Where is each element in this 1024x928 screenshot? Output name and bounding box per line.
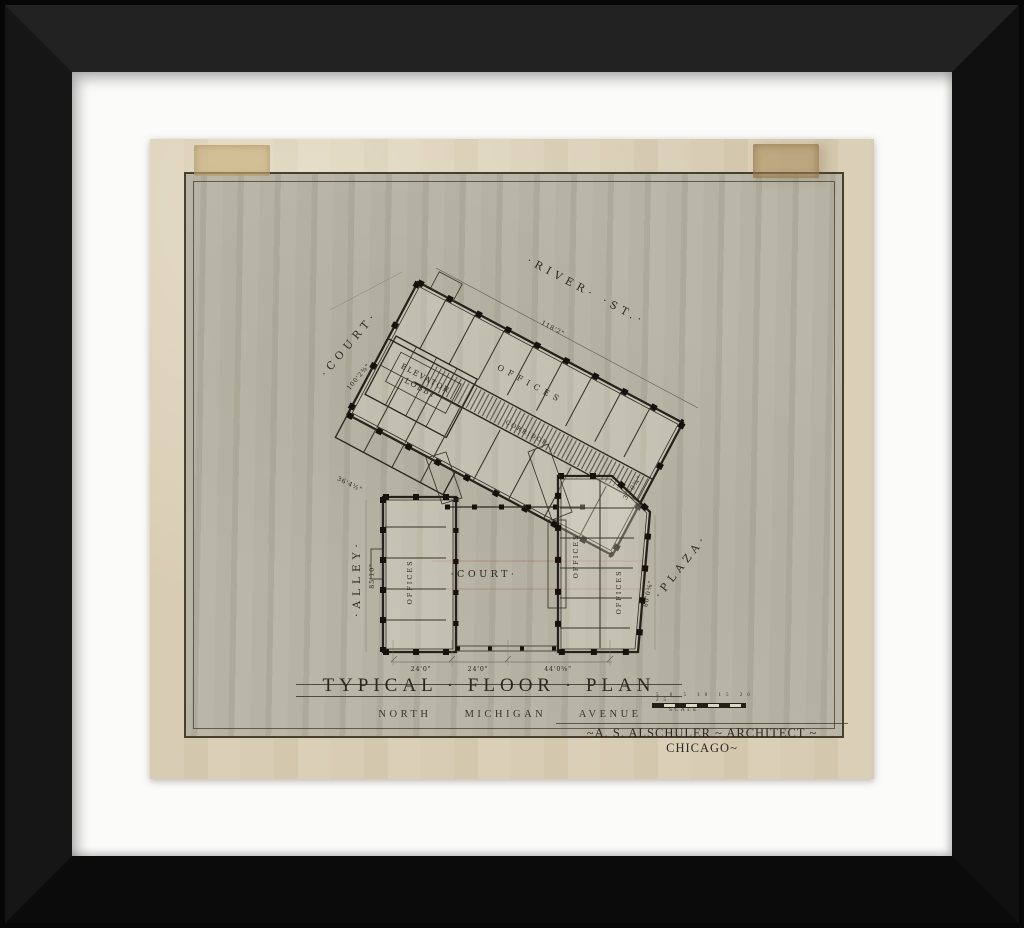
- offices-label-left: OFFICES: [406, 559, 414, 604]
- court-label: ·COURT·: [451, 569, 518, 580]
- architect-signature: ~A. S. ALSCHULER ~ ARCHITECT ~ CHICAGO~: [556, 723, 848, 756]
- floor-plan-drawing: ELEVATOR LOBBY CORRIDOR OFFICES OFFICES …: [0, 0, 1024, 928]
- street-label-river: ·RIVER· ·ST.·: [525, 255, 648, 328]
- offices-label-right-b: OFFICES: [615, 569, 623, 614]
- street-label-plaza: ·PLAZA·: [653, 532, 711, 601]
- dim-alley: 85'10": [369, 563, 376, 588]
- sheet-title: TYPICAL · FLOOR · PLAN: [292, 675, 686, 697]
- scale-bar: 5 0 5 10 15 20 25 SCALE: [653, 693, 757, 713]
- tape-mark-right: [753, 144, 819, 178]
- dim-wing-left: 36'4½": [336, 475, 364, 493]
- dim-bottom-mid: 24'0": [468, 666, 489, 673]
- scale-label: SCALE: [669, 707, 757, 713]
- scale-tick-numbers: 5 0 5 10 15 20 25: [656, 693, 757, 703]
- framed-drawing: ELEVATOR LOBBY CORRIDOR OFFICES OFFICES …: [0, 0, 1024, 928]
- offices-label-right-a: OFFICES: [572, 533, 580, 578]
- dim-bottom-left: 24'0": [411, 666, 432, 673]
- dim-bottom-right: 44'0⅝": [544, 666, 572, 673]
- sheet-subtitle: NORTH MICHIGAN AVENUE: [330, 709, 690, 720]
- street-label-alley: ·ALLEY·: [351, 539, 363, 617]
- left-office-block: OFFICES: [371, 497, 456, 652]
- tape-mark-left: [194, 145, 270, 176]
- right-office-block: OFFICES OFFICES: [558, 476, 650, 652]
- dim-river: 118'2": [540, 320, 566, 338]
